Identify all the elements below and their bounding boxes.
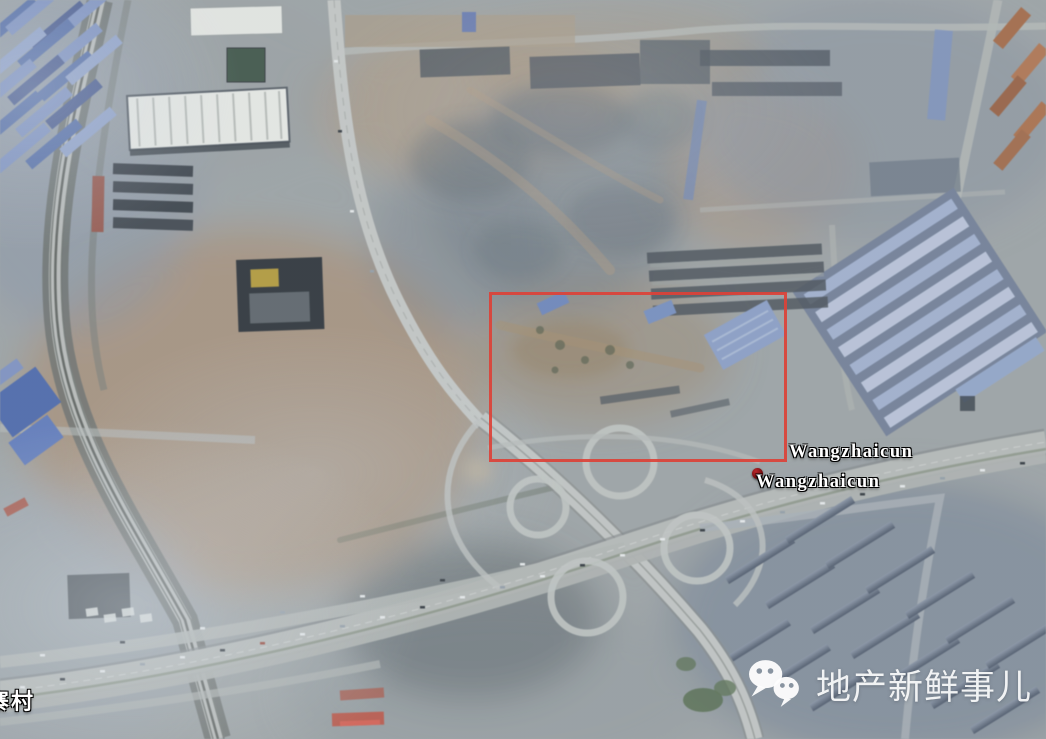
satellite-map-figure: Wangzhaicun Wangzhaicun 寨村 地产新鲜事儿: [0, 0, 1046, 739]
dark-compound: [236, 257, 324, 332]
edge-place-label: 寨村: [0, 684, 35, 716]
place-label: Wangzhaicun: [789, 442, 913, 463]
place-label: Wangzhaicun: [756, 472, 880, 493]
wechat-watermark: 地产新鲜事儿: [746, 658, 1032, 710]
white-warehouse: [127, 88, 290, 156]
watermark-text: 地产新鲜事儿: [816, 659, 1032, 710]
highlight-rectangle: [489, 292, 787, 462]
wechat-icon: [746, 658, 804, 710]
